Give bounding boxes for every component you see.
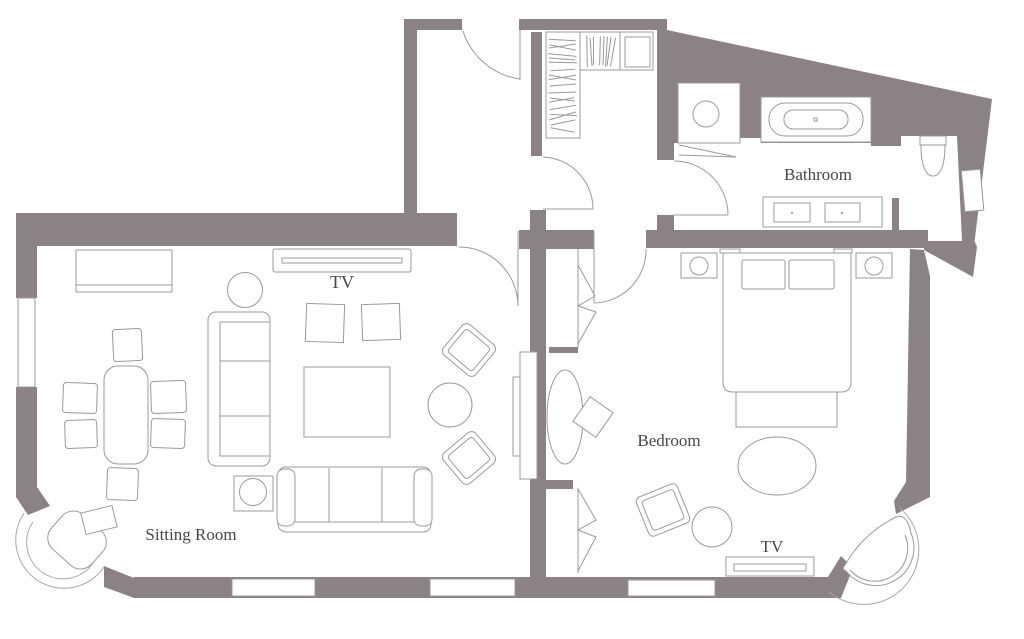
svg-text:TV: TV <box>761 537 784 556</box>
svg-text:Bathroom: Bathroom <box>784 165 852 184</box>
svg-text:Bedroom: Bedroom <box>637 431 700 450</box>
svg-text:TV: TV <box>330 272 354 292</box>
svg-text:Sitting Room: Sitting Room <box>145 525 236 544</box>
